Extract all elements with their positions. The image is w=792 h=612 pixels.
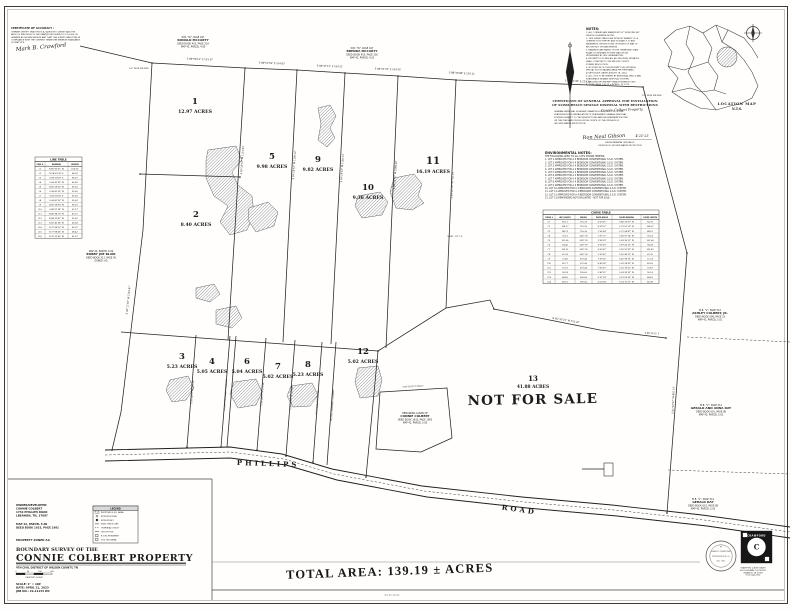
notes-line: RECORD NOT SHOWN HEREON.	[586, 47, 618, 49]
cert-accuracy-line: I HEREBY CERTIFY THAT THIS IS A CATEGORY…	[11, 31, 76, 34]
curve-table-cell: 537.43	[580, 258, 588, 260]
scale-bar-segment	[16, 573, 25, 575]
iron-pin-icon	[312, 461, 314, 463]
curve-table-cell: 101.66	[562, 240, 570, 242]
notes-line: UNLESS OTHERWISE NOTED.	[586, 35, 615, 37]
boundary-line	[283, 70, 297, 342]
owner-label: MAP 42, PARCEL 4.00	[181, 46, 206, 49]
scale-bar-segment	[25, 573, 34, 575]
lot-number: 2	[193, 210, 199, 220]
notes-line: 4. PROPERTY IS ZONED AG. ALL BUILDING SE…	[586, 57, 640, 60]
curve-table-cell: 4°29'21"	[598, 222, 607, 224]
owner-label: MAP 42, PARCEL 5.00	[403, 422, 428, 425]
scale-tick: 0	[15, 571, 17, 573]
line-table-cell: 30.00'	[72, 200, 79, 202]
curve-table-cell: 84.62	[647, 277, 653, 279]
curve-table-cell: 56.11	[562, 222, 568, 224]
line-table-header-cell: LENGTH	[71, 164, 80, 166]
line-table-cell: L9	[39, 205, 42, 207]
curve-table-cell: S 86°25'37" W	[619, 222, 634, 224]
septic-cert-line: SUBDIVISION FOR INSTALLATION OF SUBSURFA…	[554, 113, 627, 116]
iron-pin-icon	[296, 69, 298, 71]
map-text: S 88°33'08" E 150.11'	[449, 71, 476, 75]
notes-line: 5. NO PORTION OF THIS PROPERTY LIES WITH…	[586, 66, 636, 69]
lot-number: 12	[357, 347, 369, 357]
lot-acreage: 9.82 ACRES	[303, 167, 334, 173]
curve-table-title-text: CURVE TABLE	[591, 210, 611, 214]
location-map	[664, 24, 762, 110]
line-table-cell: 63.19'	[72, 227, 79, 229]
line-table-cell: 98.15'	[72, 178, 79, 180]
curve-table-cell: 103.49	[647, 249, 655, 251]
curve-table-cell: 1477.39	[579, 249, 588, 251]
owner-label: MAP 42, PARCEL 5.02	[699, 414, 724, 417]
boundary-line	[378, 300, 666, 351]
septic-cert-line: GROUND WATER PROTECTION.	[554, 122, 586, 125]
iron-pin-icon	[397, 75, 399, 77]
logo-wordmark: CRAWFORD	[747, 534, 766, 537]
line-table-cell: N 85°18'30" W	[49, 187, 64, 189]
curve-table-cell: 108.17	[562, 226, 570, 228]
septic-cert-line: ON THE PLAT AND ON FILE IN THE OFFICE OF…	[554, 119, 620, 122]
logo-letter: C	[754, 543, 760, 552]
location-map-road	[672, 88, 714, 92]
curve-table-cell: 82.77	[562, 263, 568, 265]
curve-table-cell: 5°42'21"	[598, 272, 607, 274]
septic-cert-date: 4-21-23	[634, 134, 648, 138]
curve-table-cell: C7	[548, 249, 551, 251]
curve-table-cell: 61.32	[647, 254, 653, 256]
curve-table-cell: 1477.39	[579, 235, 588, 237]
curve-table-cell: S 66°57'14" W	[619, 235, 634, 237]
line-table-cell: 58.42'	[72, 232, 79, 234]
iron-pin-icon	[344, 72, 346, 74]
curve-table-cell: C5	[548, 240, 551, 242]
not-for-sale-label: NOT FOR SALE	[468, 391, 599, 409]
north-arrow-head	[566, 50, 574, 94]
curve-table-cell: 537.43	[580, 268, 588, 270]
notes-line: 8. TOTAL AREA: 139.19 ± ACRES - 13 LOTS.	[586, 83, 630, 86]
seal-star-icon: ★	[720, 546, 722, 549]
map-text: 30' JOINT PERMANENT EASEMENT	[223, 378, 228, 411]
map-text: S 04°18'51" W 375.00'	[316, 390, 320, 414]
line-table-cell: 57.27'	[72, 209, 79, 211]
notes-line: SPECIAL FLOOD HAZARD AREA PER FIRM PANEL	[586, 69, 635, 72]
line-table-cell: 61.57'	[72, 236, 79, 238]
lot-acreage: 12.97 ACRES	[178, 109, 213, 115]
line-table-cell: L12	[38, 218, 42, 220]
seals: MARK B. CRAWFORDTENNESSEE R.L.S.NO. 1834…	[706, 531, 772, 577]
line-table-cell: L14	[38, 227, 42, 229]
line-table-cell: 60.04'	[72, 223, 79, 225]
line-table-cell: 25.00'	[72, 191, 79, 193]
dashed-line	[687, 337, 790, 342]
legend-swatch	[95, 511, 99, 513]
curve-table-cell: 94.40	[562, 245, 568, 247]
road-edge	[105, 458, 790, 538]
lot-acreage: 9.36 ACRES	[353, 195, 384, 201]
lot-acreage: 41.88 ACRES	[517, 385, 549, 390]
owner-label: MAP 42, PARCEL 5.03	[691, 508, 716, 511]
map-text: S 88°58'13" E 193.37'	[187, 58, 214, 62]
line-table-cell: L2	[39, 173, 42, 175]
notes-title: NOTES:	[586, 27, 599, 31]
curve-table-header-cell: CHORD LENGTH	[643, 217, 658, 219]
company-address-line: (615) 444-2922	[746, 575, 762, 577]
notes-line: 1. ALL CORNERS ARE MARKED BY 1/2" IRON P…	[586, 31, 640, 34]
title-block: OWNER/DEVELOPER:CONNIE COLBERT1732 PHILL…	[15, 503, 193, 593]
lot-number: 9	[315, 155, 321, 165]
soil-area	[166, 376, 194, 402]
cert-accuracy-line: GREATER AS SHOWN HEREON AND THAT THIS SU…	[11, 36, 81, 39]
legend-row-label: OVERHEAD UTILITY	[101, 527, 120, 530]
curve-table-cell: 1477.39	[579, 245, 588, 247]
curve-table-cell: C8	[548, 254, 551, 256]
soil-area	[355, 366, 382, 398]
location-map-road	[664, 25, 758, 104]
septic-cert-fill-in: Connie Colbert Property	[601, 107, 643, 112]
line-table-cell: 35.00'	[72, 196, 79, 198]
notes-line: 3. BEARINGS ARE BASED ON THE TENNESSEE S…	[586, 48, 639, 51]
scale-bar-segment	[43, 573, 52, 575]
iron-pin-icon	[377, 350, 379, 352]
parcel-ref: MAP 42, PARCEL 5.00	[16, 522, 47, 526]
line-table-cell: 106.92'	[71, 169, 79, 171]
septic-cert-caption: ENVIRONMENTAL SPECIALIST	[605, 141, 635, 144]
map-text: S 88°52'54" E 104.82'	[259, 62, 286, 66]
legend-swatch	[96, 538, 98, 540]
curve-table-cell: 103.51	[562, 249, 570, 251]
house-symbol	[604, 463, 613, 476]
line-table-cell: 95.02'	[72, 218, 79, 220]
curve-table-cell: S 39°24'53" W	[619, 263, 634, 265]
soil-area	[206, 146, 254, 235]
curve-table-cell: 4°00'52"	[598, 249, 607, 251]
line-table-header-cell: BEARING	[52, 164, 62, 166]
dashed-line	[105, 452, 790, 532]
curve-table-cell: 716.20	[580, 226, 588, 228]
curve-table-cell: 5°21'18"	[598, 277, 607, 279]
map-labels: 112.97 ACRES28.40 ACRES59.98 ACRES99.82 …	[86, 36, 756, 597]
line-table-cell: 98.10'	[72, 205, 79, 207]
curve-table-cell: 66.10	[562, 281, 568, 283]
location-map-label: LOCATION MAP	[718, 102, 757, 106]
curve-table-cell: 3°39'39"	[598, 245, 607, 247]
iron-pin-icon	[666, 512, 668, 514]
lot-acreage: 16.19 ACRES	[416, 169, 451, 175]
env-notes-line: 13. LOT 13 (REMAINDER) NOT EVALUATED - N…	[545, 197, 610, 200]
notes-line: CURRENT TITLE REPORT AND IS SUBJECT TO A…	[586, 40, 636, 43]
curve-table-cell: 88.67	[647, 231, 653, 233]
curve-table-cell: C6	[548, 245, 551, 247]
curve-table-cell: C10	[547, 263, 552, 265]
line-table-cell: N 04°41'30" E	[49, 173, 64, 175]
notes-line: EASEMENTS, RESTRICTIONS OR RIGHTS OF WAY…	[586, 43, 638, 46]
dashed-line	[668, 470, 790, 474]
iron-pin-icon	[642, 86, 644, 88]
line-table-cell: N 85°18'30" W	[49, 205, 64, 207]
zoning-label: PROPERTY ZONED AG	[16, 538, 51, 542]
curve-table-cell: 2°57'12"	[598, 235, 607, 237]
line-table-cell: 64.90'	[72, 173, 79, 175]
surveyor-signature: Mark B. Crawford	[15, 43, 67, 54]
notes-line: 47189C0140F, DATED AUGUST 18, 2014.	[586, 72, 628, 75]
lot-number: 4	[209, 357, 215, 367]
line-table-cell: S 04°41'30" W	[49, 191, 64, 193]
notes-line: DETERMINED BY GPS OBSERVATIONS.	[586, 54, 624, 57]
line-table-cell: L13	[38, 223, 42, 225]
legend-row-label: UTILITY POLE	[101, 532, 114, 534]
lot-acreage: 5.04 ACRES	[232, 369, 263, 375]
graphic-scale-label: GRAPHIC SCALE	[25, 577, 43, 579]
curve-table-cell: C2	[548, 226, 551, 228]
owner-label: MAP 42, PARCEL 5.01	[698, 319, 723, 322]
curve-table-cell: 537.43	[580, 263, 588, 265]
curve-table-cell: 71.74	[647, 258, 653, 260]
iron-pin-icon	[244, 67, 246, 69]
legend-swatch	[96, 534, 98, 536]
curve-table-cell: 94.38	[647, 245, 653, 247]
curve-table-cell: S 71°58'47" W	[619, 231, 634, 233]
iron-pin-icon	[151, 62, 153, 64]
location-map-road	[668, 62, 708, 70]
iron-pin-icon	[686, 252, 688, 254]
seal-name: MARK B. CRAWFORD	[711, 551, 732, 553]
curve-table-cell: C11	[547, 268, 552, 270]
boundary-line	[80, 46, 152, 63]
line-table-cell: S 04°41'30" W	[49, 200, 64, 202]
line-table-cell: L16	[38, 236, 42, 238]
boundary-line	[112, 63, 152, 450]
curve-table-cell: S 14°17'27" W	[619, 281, 634, 283]
curve-table-cell: S 19°03'33" W	[619, 277, 634, 279]
curve-table-cell: 56.09	[647, 222, 653, 224]
legend-row-label: IRON PIN FOUND	[101, 516, 117, 518]
notes-line: PLANE COORDINATE SYSTEM (NAD 83) AS	[586, 51, 629, 54]
curve-table-cell: S 52°40'12" W	[619, 254, 634, 256]
scale-tick: 200	[50, 571, 54, 573]
legend-swatch	[96, 515, 98, 517]
lot-number: 6	[244, 357, 250, 367]
site-location-marker	[717, 47, 737, 67]
curve-table-cell: 8°49'24"	[598, 263, 607, 265]
page-title: CONNIE COLBERT PROPERTY	[16, 553, 193, 564]
line-table-cell: L7	[39, 196, 42, 198]
curve-table-header-cell: CHORD BEARING	[619, 217, 635, 219]
line-table-cell: L1	[39, 169, 42, 171]
boundary-line	[643, 87, 687, 513]
notes-line: 6. ALL LOTS TO BE SERVED BY INDIVIDUAL W…	[586, 75, 642, 78]
line-table-cell: N 77°58'06" W	[49, 232, 64, 234]
lot-number: 7	[275, 362, 281, 372]
line-table-cell: N 76°12'45" W	[49, 236, 64, 238]
soil-area-hatches	[166, 105, 424, 408]
line-table-cell: L4	[39, 182, 42, 184]
scale-tick: 100	[38, 571, 42, 573]
lot-acreage: 8.40 ACRES	[181, 222, 212, 228]
notes-line: 7. UTILITIES SHOWN PER VISIBLE EVIDENCE …	[586, 81, 636, 83]
iron-pin-icon	[455, 79, 457, 81]
soil-area	[196, 284, 220, 302]
map-text: S 04°18'51" W 1104.73'	[340, 153, 345, 182]
curve-table-cell: S 79°51'20" W	[619, 226, 634, 228]
scale-tick: 50	[27, 571, 30, 573]
lot-number: 3	[179, 352, 185, 362]
line-table-cell: S 04°41'30" W	[49, 182, 64, 184]
line-table-cell: L5	[39, 187, 42, 189]
lot-acreage: 5.23 ACRES	[167, 364, 198, 370]
curve-table-cell: 2°22'42"	[598, 254, 607, 256]
line-table-cell: S 85°18'29" E	[50, 178, 65, 180]
plat-drawing: LINE TABLELINE #BEARINGLENGTHL1N 85°33'3…	[0, 0, 792, 612]
lot-acreage: 5.23 ACRES	[293, 372, 324, 378]
curve-table-cell: 70.92	[562, 268, 568, 270]
district-label: 4TH CIVIL DISTRICT OF WILSON COUNTY, TN	[16, 566, 78, 570]
curve-table-cell: 8°39'12"	[598, 226, 607, 228]
curve-table-cell: 1477.39	[579, 254, 588, 256]
notes-line: 2. THIS SURVEY WAS DONE WITHOUT BENEFIT …	[586, 37, 638, 40]
line-table-cell: L3	[39, 178, 42, 180]
map-text: S 85°18'29" E 98.15'	[403, 385, 424, 388]
septic-cert-caption2: DIVISION OF GROUND WATER PROTECTION	[598, 144, 642, 147]
curve-table-cell: S 55°51'59" W	[619, 249, 634, 251]
iron-pin-icon	[239, 176, 241, 178]
location-map-scale: N.T.S.	[732, 107, 742, 111]
line-table-cell: S 88°21'54" W	[49, 209, 64, 211]
curve-table-cell: 108.07	[647, 226, 655, 228]
curve-table-cell: S 59°42'15" W	[619, 245, 634, 247]
legend-title: LEGEND	[110, 507, 120, 510]
boundary-line	[386, 76, 398, 348]
lot-number: 11	[426, 156, 440, 167]
scale-bar-segment	[34, 573, 43, 575]
curve-table-cell: 66.08	[647, 281, 653, 283]
line-table-cell: L11	[38, 214, 42, 216]
map-text: S 88°47'12" E 104.21'	[317, 65, 344, 69]
legend-row-label: R.O.W. MONUMENT	[101, 535, 120, 537]
lot-acreage: 5.02 ACRES	[348, 359, 379, 365]
curve-table-cell: C1	[548, 222, 551, 224]
legend-row-label: PROPOSED S.S.D. AREA	[101, 511, 124, 514]
note-blocks: CERTIFICATE OF ACCURACY :I HEREBY CERTIF…	[11, 26, 659, 200]
legend-row-label: SOIL TEST AREA	[101, 538, 117, 541]
iron-pin-icon	[665, 337, 667, 339]
line-table-cell: 60.00'	[72, 182, 79, 184]
curve-table-cell: 61.33	[562, 254, 568, 256]
curve-table-cell: 71.80	[562, 258, 568, 260]
legend-row-label: EXIST. FENCE LINE	[101, 524, 119, 526]
line-table-header-cell: LINE #	[37, 164, 44, 166]
curve-table-cell: C9	[548, 258, 551, 260]
curve-table-cell: 76.15	[562, 235, 568, 237]
curve-table-cell: 7°33'37"	[598, 268, 607, 270]
curve-table-cell: S 47°39'13" W	[619, 258, 634, 260]
lot-number: 13	[528, 374, 538, 383]
curve-table-cell: 101.64	[647, 240, 655, 242]
curve-table-cell: 90.14	[647, 272, 653, 274]
owner-label: MAP 42, PARCEL 4.01	[350, 57, 375, 60]
lot-acreage: 5.05 ACRES	[197, 369, 228, 375]
lot-number: 1	[192, 97, 198, 107]
deed-ref: DEED BOOK 1633, PAGE 1992	[16, 526, 59, 530]
curve-table-cell: 716.20	[580, 222, 588, 224]
map-text: EXIST. 1/2" I.P.	[448, 236, 463, 238]
road-name-road: ROAD	[501, 503, 537, 517]
line-table-cell: N 86°54'13" W	[49, 214, 64, 216]
cert-accuracy-line: COMPLIANCE WITH THE CURRENT TENNESSEE MI…	[11, 38, 81, 41]
curve-table-cell: 905.60	[580, 272, 588, 274]
septic-cert-line: SYSTEMS SUBJECT TO THE RESTRICTIONS AND …	[554, 116, 628, 119]
curve-table-header-cell: DELTA ANGLE	[596, 217, 608, 219]
logo-corner	[765, 557, 769, 561]
legend-swatch	[96, 519, 98, 521]
curve-table-header-cell: RADIUS	[580, 217, 588, 219]
compass-needle	[751, 27, 754, 39]
map-text: 1/2" IRON PIN FND.	[642, 95, 662, 97]
lot-number: 10	[362, 183, 374, 193]
iron-pin-icon	[139, 173, 141, 175]
line-table-cell: N 84°20'47" W	[49, 218, 64, 220]
cert-accuracy-title: CERTIFICATE OF ACCURACY :	[11, 26, 54, 30]
line-table-cell: N 79°54'33" W	[49, 227, 64, 229]
lot-number: 5	[269, 152, 275, 162]
notes-line: ZONING RESOLUTION.	[586, 64, 609, 66]
seal-state: TENNESSEE R.L.S.	[712, 556, 730, 558]
curve-table-cell: C3	[548, 231, 551, 233]
notes-line: SHALL CONFORM TO THE WILSON COUNTY	[586, 60, 630, 63]
line-table-cell: L15	[38, 232, 42, 234]
curve-table-cell: S 31°13'22" W	[619, 268, 634, 270]
map-text: S 04°18'51" W 375.00'	[191, 380, 195, 404]
curve-table-cell: 88.73	[562, 231, 568, 233]
notes-line: SUBSURFACE SEWAGE DISPOSAL SYSTEMS.	[586, 77, 630, 80]
curve-table-cell: 716.20	[580, 231, 588, 233]
map-text: S 04°22'10" W 782.55'	[450, 171, 454, 199]
curve-table-cell: 1477.39	[579, 240, 588, 242]
iron-pin-icon	[493, 308, 495, 310]
curve-table-cell: 7°05'54"	[598, 231, 607, 233]
map-text: WC 22-11134	[385, 594, 401, 597]
curve-table-cell: 70.87	[647, 268, 653, 270]
cert-accuracy-line: RATIO OF PRECISION OF THE UNADJUSTED SUR…	[11, 33, 78, 36]
curve-table-cell: 905.60	[580, 277, 588, 279]
curve-table-cell: 905.60	[580, 281, 588, 283]
map-text: S 04°18'51" W 1113.04'	[240, 145, 245, 174]
owner-developer-line: LEBANON, TN, 37087	[16, 513, 48, 517]
cert-accuracy-line: OF PRACTICE.	[11, 41, 25, 44]
survey-sheet: LINE TABLELINE #BEARINGLENGTHL1N 85°33'3…	[0, 0, 792, 612]
curve-table-cell: C14	[547, 281, 552, 283]
lot-acreage: 5.02 ACRES	[263, 374, 294, 380]
curve-table-cell: C13	[547, 277, 552, 279]
line-table-cell: L8	[39, 200, 42, 202]
lot-number: 8	[305, 360, 311, 370]
map-text: S 88°41'33" E 104.55'	[375, 68, 402, 72]
curve-table-cell: S 24°35'23" W	[619, 272, 634, 274]
curve-table-cell: 7°39'16"	[598, 258, 607, 260]
map-text: S 04°18'51" W 375.00'	[261, 382, 265, 406]
curve-table-cell: S 63°30'21" W	[619, 240, 634, 242]
line-table-cell: L6	[39, 191, 42, 193]
iron-pin-icon	[365, 476, 367, 478]
map-text: S 06°11'42" W 1263.87'	[126, 285, 132, 314]
curve-table-cell: 84.65	[562, 277, 568, 279]
curve-table-cell: 3°56'33"	[598, 240, 607, 242]
legend-row-label: IRON PIN SET	[101, 520, 114, 522]
line-table-cell: 35.00'	[72, 187, 79, 189]
line-table-cell: 60.11'	[72, 214, 79, 216]
job-note: JOB NO.: 22-11134 WC	[15, 589, 50, 593]
